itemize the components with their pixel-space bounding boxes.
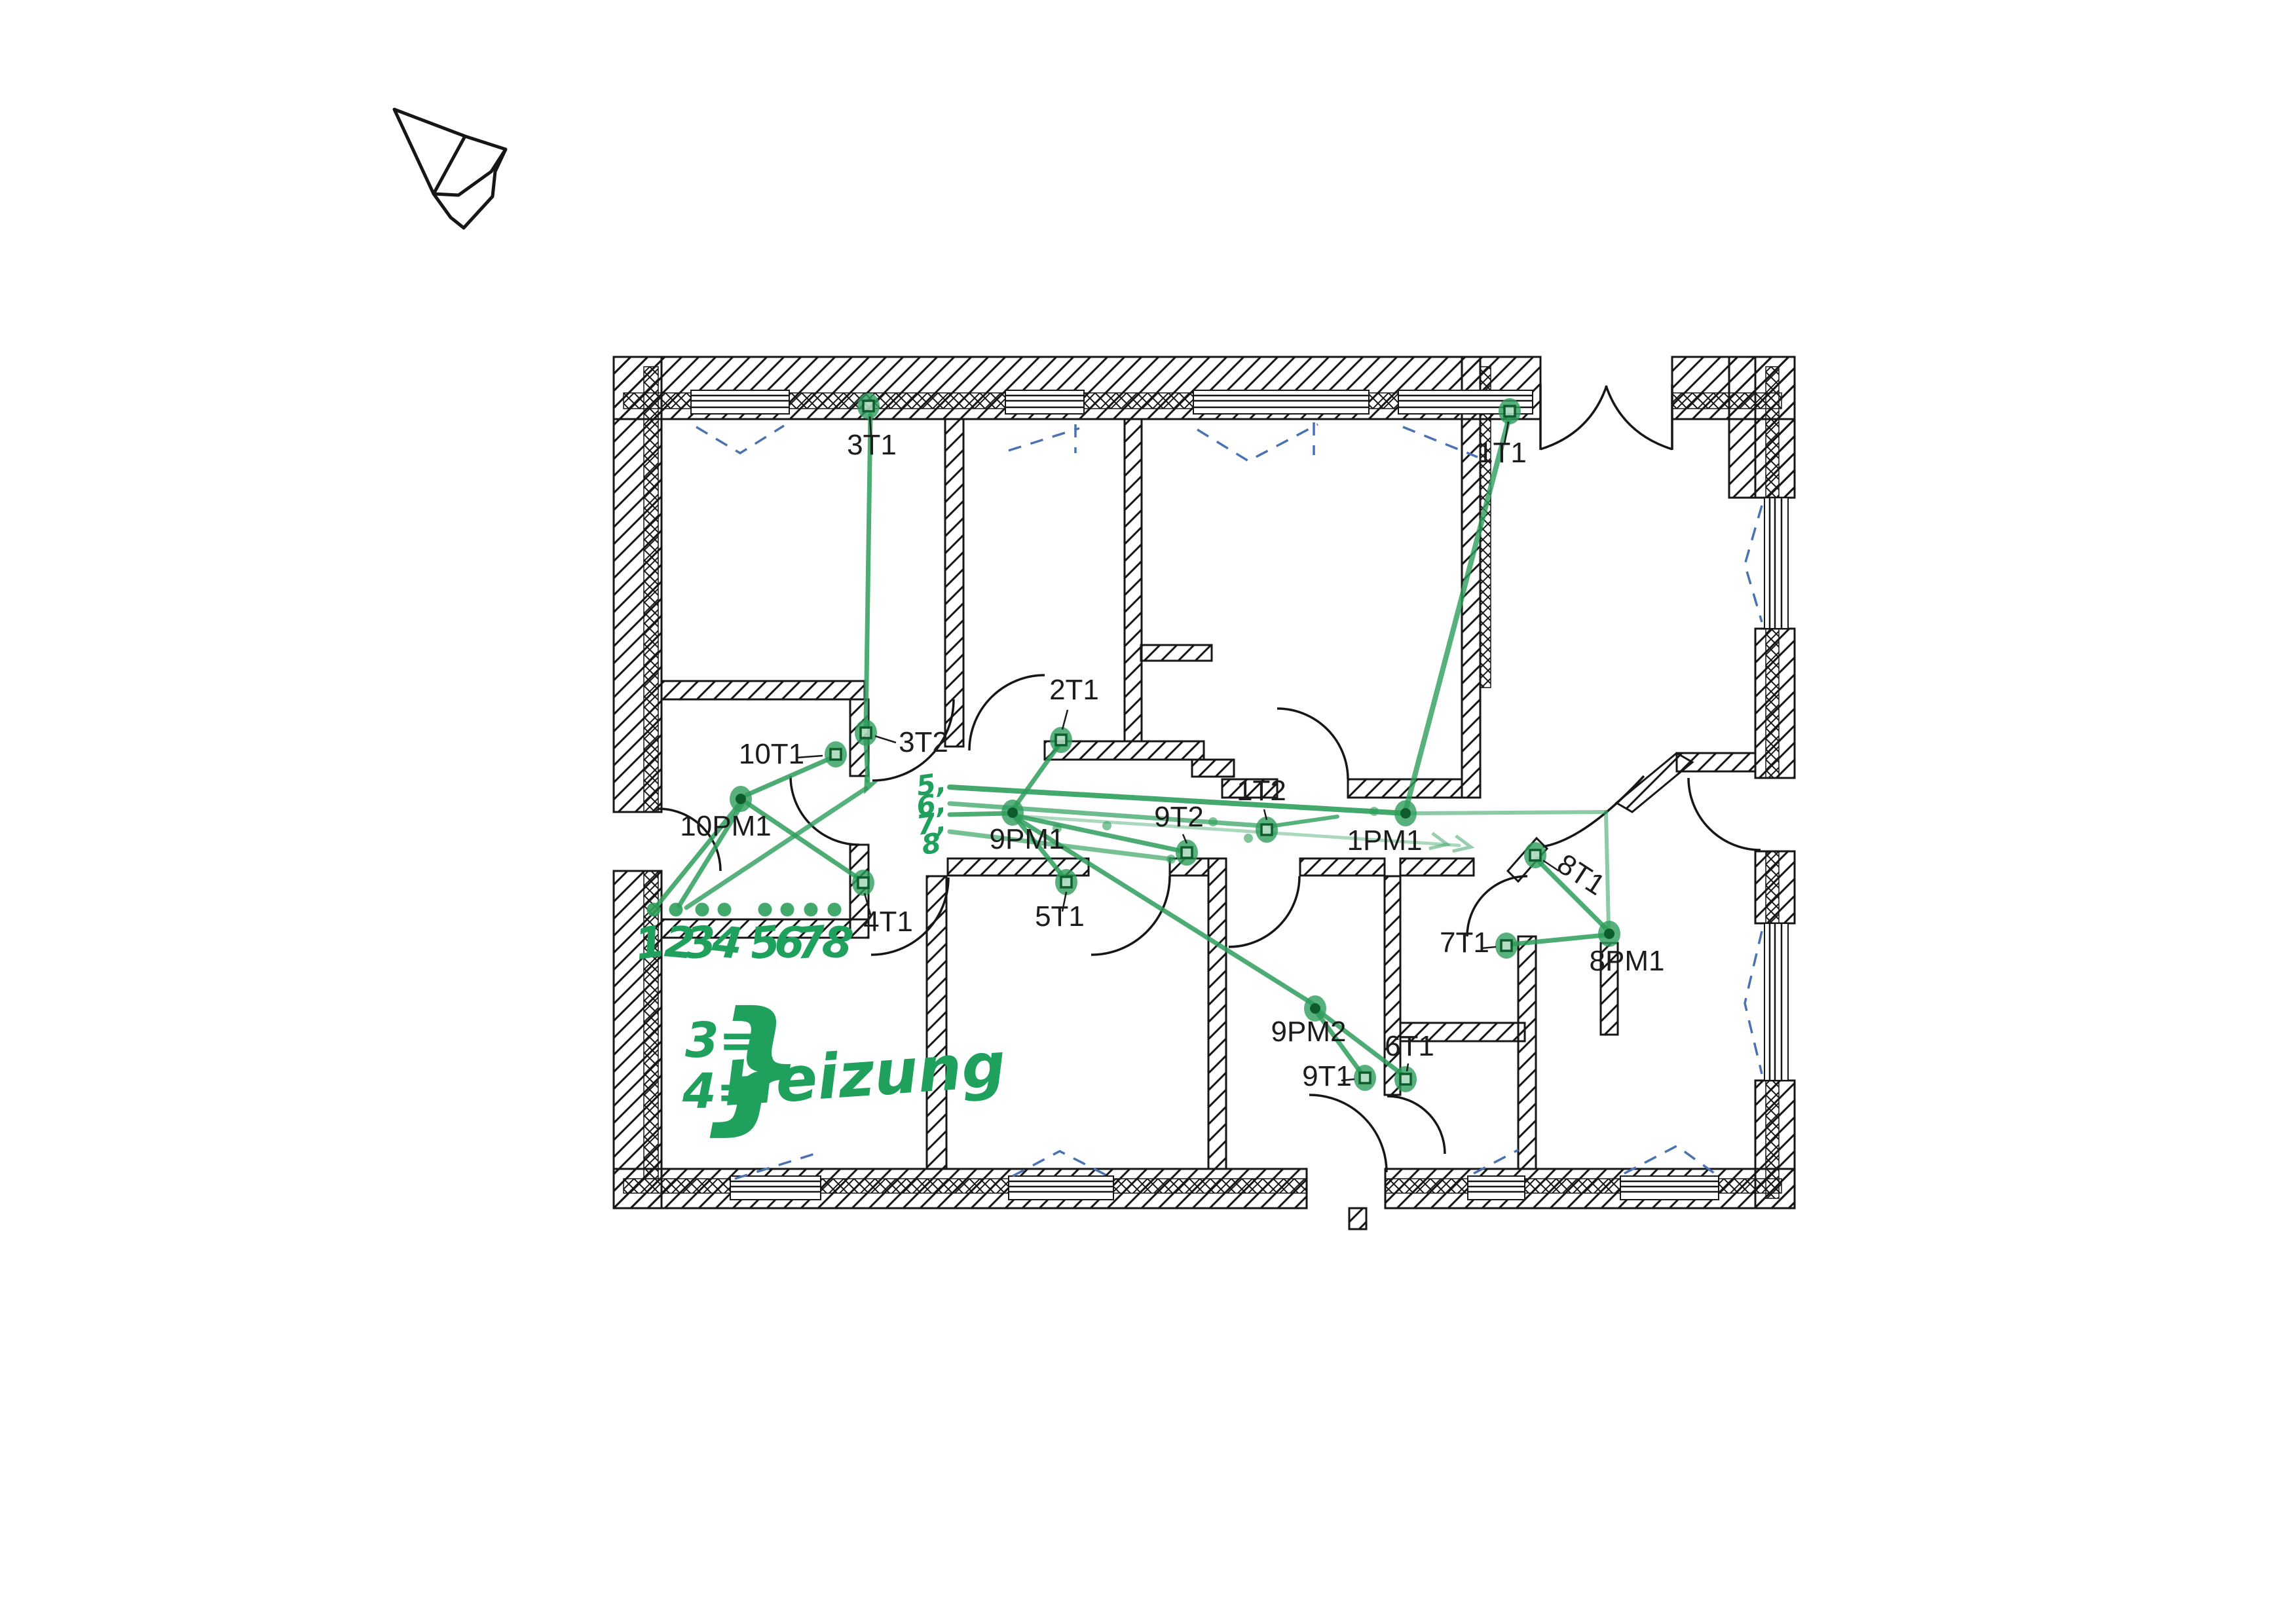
circuit-dot (758, 903, 772, 917)
wall-midroom-left (1208, 858, 1226, 1169)
device-door-contact-symbol (863, 401, 874, 411)
device-label-10T1: 10T1 (739, 738, 804, 770)
device-door-contact-symbol (1400, 1074, 1411, 1084)
wall-corridor-pier (1192, 760, 1234, 777)
device-door-contact-symbol (1056, 735, 1066, 745)
circuit-dot (804, 903, 818, 917)
device-door-contact-symbol (1061, 877, 1072, 887)
wall-right-corner-pier (1729, 357, 1795, 498)
insulation-strip (644, 367, 658, 812)
wall-roomA-roomB-divider (945, 419, 963, 747)
insulation-strip (1766, 629, 1779, 778)
device-door-contact-symbol (861, 728, 871, 738)
paper-background (0, 0, 2295, 1624)
window-bottom-2 (1009, 1176, 1113, 1200)
device-door-contact-symbol (1182, 847, 1192, 858)
device-pm-symbol (1604, 929, 1614, 939)
wire-tick-dot (1208, 817, 1218, 826)
device-door-contact-symbol (1501, 940, 1512, 951)
device-label-4T1: 4T1 (863, 906, 913, 938)
wire-tick-dot (1102, 821, 1111, 830)
device-door-contact-symbol (1261, 824, 1272, 835)
window-bottom-4 (1620, 1176, 1719, 1200)
wire-w-3T2-end (866, 740, 868, 781)
device-label-3T2: 3T2 (899, 726, 948, 758)
circuit-dot (647, 903, 661, 917)
device-label-9T1: 9T1 (1302, 1060, 1352, 1092)
device-door-contact-symbol (858, 877, 868, 888)
device-pm-symbol (1007, 807, 1018, 818)
device-label-1T2: 1T2 (1237, 775, 1286, 807)
device-label-1T1: 1T1 (1477, 437, 1527, 469)
insulation-strip (624, 1179, 730, 1193)
floor-plan-scan: 3T11T12T13T210T110PM19PM19T21T21PM18T15T… (0, 0, 2295, 1624)
device-label-1PM1: 1PM1 (1347, 824, 1423, 857)
window-top-3 (1193, 390, 1369, 414)
insulation-strip (1766, 1080, 1779, 1198)
window-top-2 (1005, 390, 1084, 414)
handwritten-circuit-number: 4 (709, 916, 745, 969)
device-label-8PM1: 8PM1 (1590, 945, 1665, 977)
device-label-3T1: 3T1 (847, 429, 897, 461)
wall-roomC-niche-stub (1141, 645, 1212, 661)
insulation-strip (1525, 1179, 1620, 1193)
wall-6T1-room-right (1518, 936, 1536, 1169)
exterior-step-stub (1349, 1208, 1366, 1229)
insulation-strip (1113, 1179, 1307, 1193)
device-label-9PM2: 9PM2 (1271, 1016, 1347, 1048)
insulation-strip (821, 1179, 1009, 1193)
wire-w-line5-ext (1408, 812, 1606, 813)
circuit-dot (696, 903, 709, 917)
window-bottom-3 (1468, 1176, 1525, 1200)
device-label-10PM1: 10PM1 (680, 810, 771, 842)
wall-roomC-bottom-right (1348, 779, 1462, 798)
circuit-dot (828, 903, 842, 917)
device-pm-symbol (1310, 1003, 1320, 1014)
wire-tick-dot (1370, 807, 1379, 816)
window-top-1 (691, 390, 789, 414)
insulation-strip (1672, 393, 1782, 409)
device-pm-symbol (1400, 808, 1411, 819)
device-label-9T2: 9T2 (1154, 801, 1204, 833)
device-label-9PM1: 9PM1 (990, 823, 1065, 855)
circuit-dot (781, 903, 794, 917)
insulation-strip (1084, 393, 1193, 409)
insulation-strip (1766, 367, 1779, 498)
wall-roomA-bottom (662, 681, 865, 699)
insulation-strip (1369, 393, 1398, 409)
window-bottom-1 (730, 1176, 821, 1200)
device-10T1: 10T1 (739, 738, 847, 770)
device-label-6T1: 6T1 (1385, 1030, 1434, 1062)
device-label-5T1: 5T1 (1035, 900, 1085, 932)
device-label-2T1: 2T1 (1049, 674, 1099, 706)
wire-tick-dot (1166, 855, 1176, 864)
insulation-strip (1385, 1179, 1468, 1193)
wire-tick-dot (1244, 834, 1253, 843)
circuit-dot (669, 903, 683, 917)
circuit-dot (718, 903, 732, 917)
device-door-contact-symbol (1530, 850, 1540, 860)
window-right-1 (1764, 498, 1788, 629)
device-9T1: 9T1 (1302, 1060, 1376, 1092)
insulation-strip (1766, 851, 1779, 923)
wire-w-line5-down-8PM1 (1606, 812, 1609, 927)
insulation-strip (789, 393, 1005, 409)
wall-corridor-bottom-3 (1300, 858, 1385, 876)
wall-corridor-bottom-4 (1400, 858, 1474, 876)
window-right-2 (1764, 923, 1788, 1080)
device-door-contact-symbol (1360, 1073, 1370, 1083)
wall-roomB-roomC-divider (1125, 419, 1142, 741)
device-pm-symbol (736, 794, 746, 804)
device-door-contact-symbol (1504, 406, 1515, 416)
device-label-7T1: 7T1 (1440, 927, 1489, 959)
wire-w-line7 (950, 813, 1009, 815)
device-door-contact-symbol (830, 749, 841, 760)
